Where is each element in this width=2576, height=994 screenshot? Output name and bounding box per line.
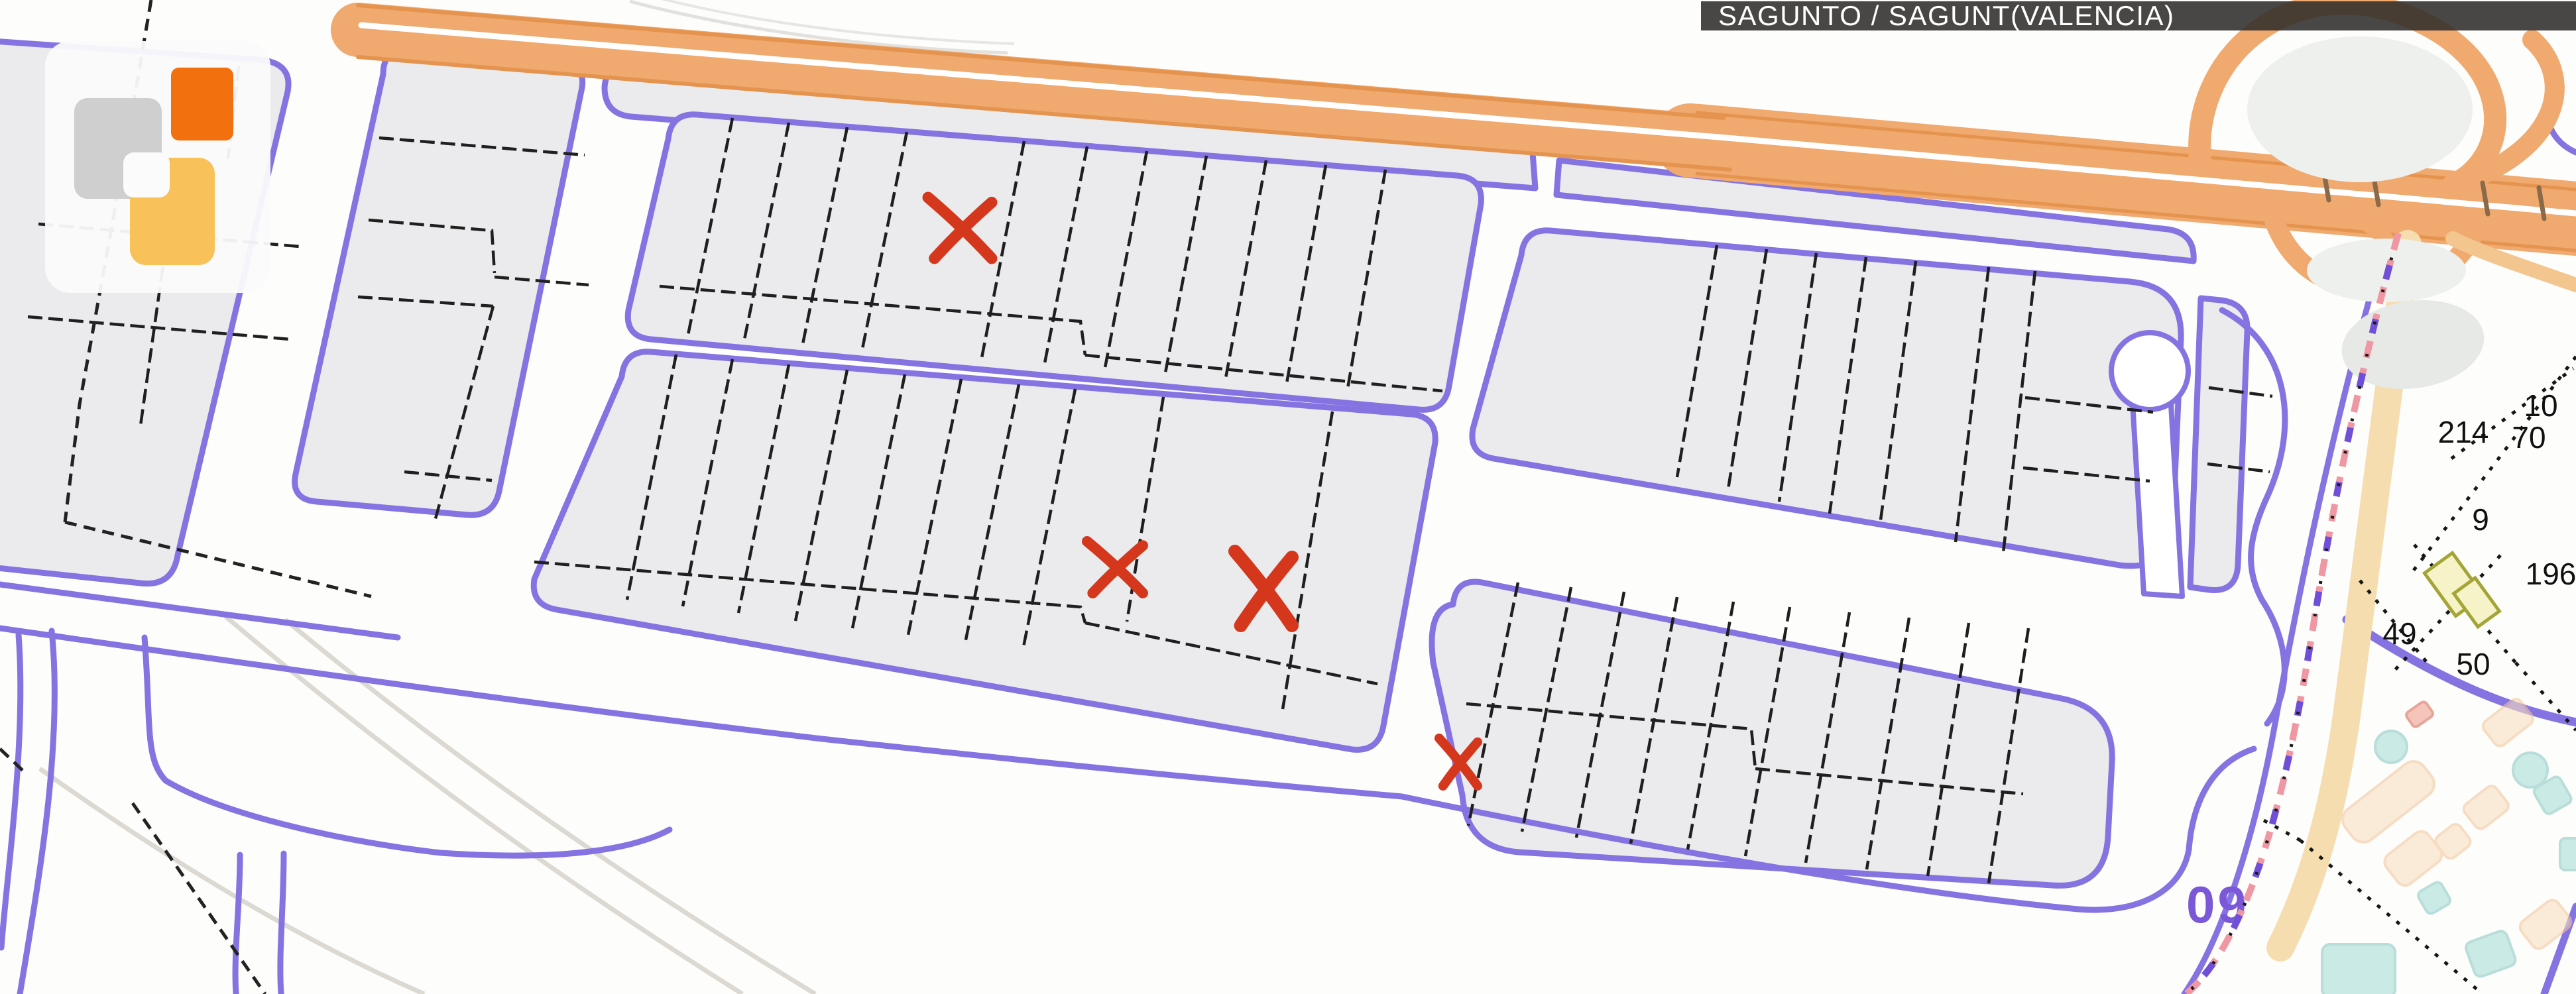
block-a — [295, 50, 583, 515]
parcel-number: 70 — [2512, 420, 2546, 455]
parcel-number: 214 — [2438, 415, 2489, 449]
parcel-number-labels: 102147091964950 — [2382, 388, 2576, 681]
pastel-footprints — [2322, 696, 2576, 994]
zone-label: 09 — [2186, 875, 2249, 934]
catastro-logo — [45, 41, 270, 293]
parcel-number: 49 — [2382, 616, 2416, 651]
logo-notch — [123, 152, 170, 197]
parcel-number: 10 — [2524, 388, 2557, 423]
municipality-name: SAGUNTO / SAGUNT(VALENCIA) — [1718, 0, 2175, 31]
block-d — [1472, 231, 2181, 566]
map-canvas[interactable]: 102147091964950 09 — [0, 0, 2576, 994]
parcel-number: 9 — [2472, 502, 2489, 537]
zone-number: 09 — [2186, 875, 2249, 934]
parcel-number: 196 — [2526, 557, 2576, 591]
municipality-title-bar: SAGUNTO / SAGUNT(VALENCIA) — [1701, 1, 2576, 30]
parcel-number: 50 — [2456, 647, 2490, 681]
rural-buildings — [2424, 553, 2499, 626]
block-right-piece — [2190, 298, 2247, 590]
map-viewport[interactable]: 102147091964950 09 SAGUNTO / SAGUNT(VALE… — [0, 0, 2576, 994]
block-e — [1432, 582, 2112, 885]
